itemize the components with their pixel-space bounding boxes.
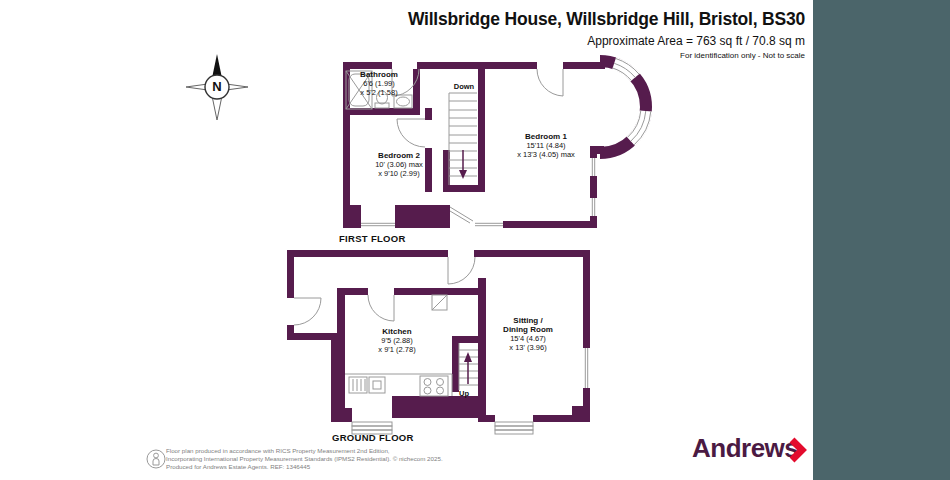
room-label-sitting-dining: Sitting / Dining Room 15'4 (4.67) x 13' …	[503, 316, 553, 352]
andrews-chevron-icon	[789, 437, 807, 463]
stairs-down-label: Down	[454, 82, 474, 91]
room-label-bedroom-1: Bedroom 1 15'11 (4.84) x 13'3 (4.05) max	[517, 132, 575, 159]
room-label-kitchen: Kitchen 9'5 (2.88) x 9'1 (2.78)	[378, 327, 415, 354]
ground-floor-caption: GROUND FLOOR	[332, 432, 414, 443]
floorplan-drawing	[0, 0, 950, 480]
room-label-bedroom-2: Bedroom 2 10' (3.06) max x 9'10 (2.99)	[375, 151, 423, 178]
floorplan-page: Willsbridge House, Willsbridge Hill, Bri…	[0, 0, 950, 480]
nichecom-logo-icon	[146, 448, 166, 470]
andrews-logo: Andrews	[692, 433, 798, 464]
disclaimer-line-2: Incorporating International Property Mea…	[166, 455, 443, 463]
disclaimer-text: Floor plan produced in accordance with R…	[166, 447, 443, 471]
disclaimer-line-3: Produced for Andrews Estate Agents. REF:…	[166, 463, 443, 471]
disclaimer-line-1: Floor plan produced in accordance with R…	[166, 447, 443, 455]
stairs-up-label: Up	[459, 389, 469, 398]
room-label-bathroom: Bathroom 6'6 (1.99) x 5'2 (1.58)	[360, 70, 398, 97]
first-floor-caption: FIRST FLOOR	[339, 233, 406, 244]
